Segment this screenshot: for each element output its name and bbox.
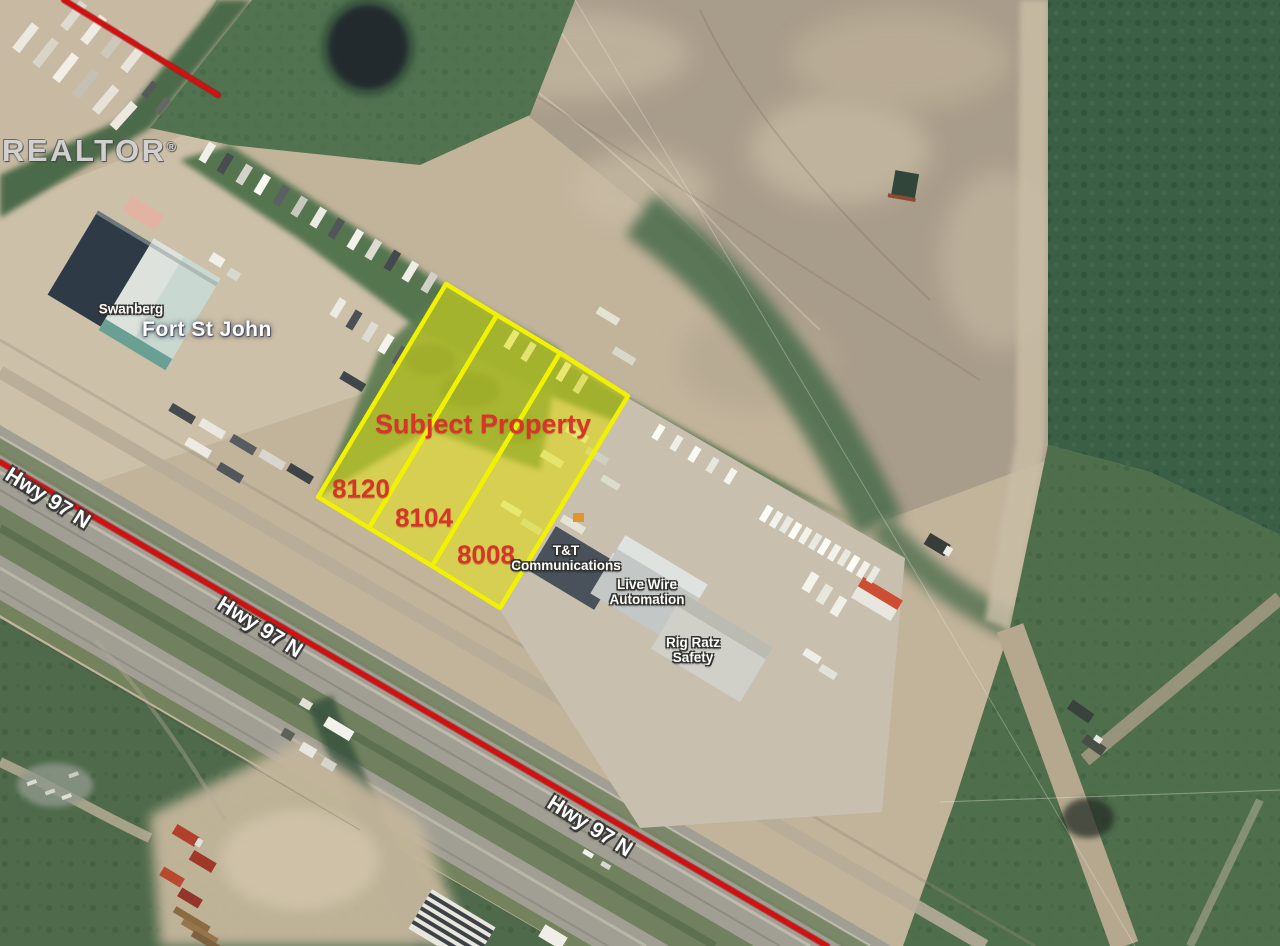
realtor-watermark-text: REALTOR: [2, 133, 166, 168]
aerial-property-map: REALTOR® Swanberg Fort St John Subject P…: [0, 0, 1280, 946]
aerial-imagery: [0, 0, 1280, 946]
registered-trademark-symbol: ®: [166, 139, 176, 154]
pond: [320, 0, 416, 97]
realtor-watermark: REALTOR®: [2, 133, 176, 169]
